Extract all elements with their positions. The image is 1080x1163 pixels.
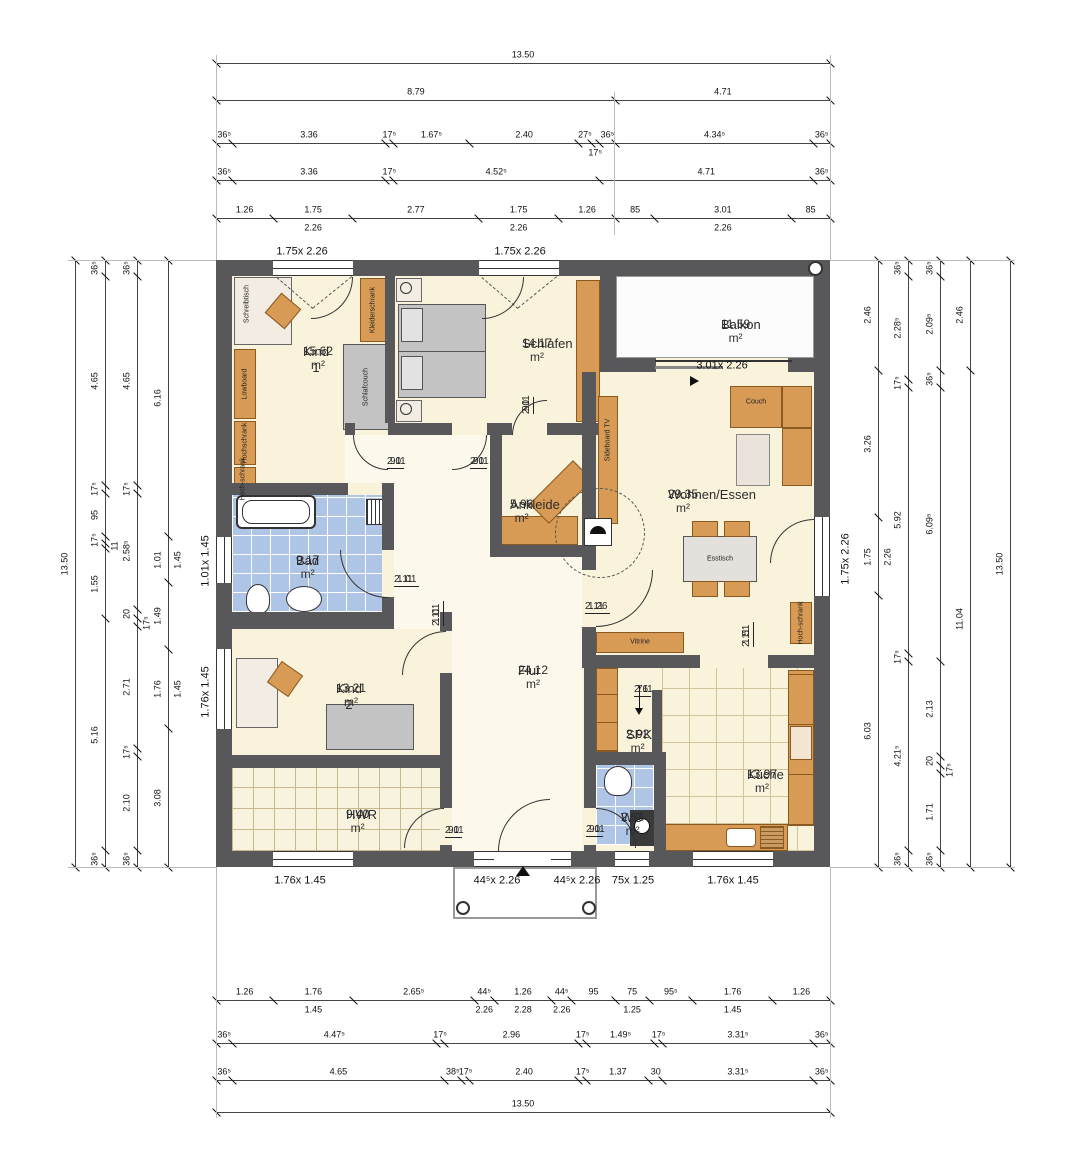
dim-sub-label: 2.26: [714, 224, 732, 233]
room-area: 24.12 m²: [518, 663, 548, 692]
window: [216, 649, 232, 729]
room-area: 9.17 m²: [296, 553, 319, 582]
dim-label: 3.26: [864, 435, 873, 453]
dim-line: [168, 260, 169, 867]
furniture-label-esstisch: Esstisch: [707, 556, 733, 563]
dim-label: 2.58⁵: [123, 541, 132, 562]
porch-column: [456, 901, 470, 915]
dim-label: 17⁵: [91, 483, 100, 497]
wall: [584, 845, 596, 851]
dim-label: 36⁵: [217, 1031, 231, 1040]
dim-label: 1.76: [724, 988, 742, 997]
dim-label: 17⁵: [91, 533, 100, 547]
room-area: 15.62 m²: [303, 344, 333, 373]
extension-line: [830, 867, 831, 1118]
wall: [768, 655, 814, 668]
window: [693, 851, 773, 867]
room-area: 13.21 m²: [336, 681, 366, 710]
dim-label: 1.71: [926, 803, 935, 821]
door-height: 2.11: [585, 601, 604, 613]
dim-label: 27⁵: [578, 131, 592, 140]
extension-line: [614, 92, 615, 235]
window: [273, 260, 353, 276]
dim-label: 20: [926, 756, 935, 766]
window-size-label: 44⁵x 2.26: [554, 876, 601, 887]
dim-label: 1.26: [236, 988, 254, 997]
room-area: 2.56 m²: [621, 810, 644, 839]
wall: [654, 765, 666, 851]
porch-column: [582, 901, 596, 915]
room-area: 29.35 m²: [668, 487, 698, 516]
window-size-label: 44⁵x 2.26: [474, 876, 521, 887]
dim-label: 3.36: [300, 168, 318, 177]
dim-label: 36⁵: [894, 852, 903, 866]
wall: [616, 358, 656, 372]
wall: [440, 673, 452, 768]
dim-label: 44⁵: [477, 988, 491, 997]
window: [479, 260, 559, 276]
dim-label: 95: [588, 988, 598, 997]
window: [474, 851, 494, 867]
room-area: 9.40 m²: [346, 807, 369, 836]
dim-line: [216, 1112, 830, 1113]
wall: [382, 483, 394, 550]
dining-chair: [692, 581, 718, 597]
extension-line: [216, 867, 217, 1118]
dim-line: [216, 218, 830, 219]
dim-label: 13.50: [512, 1100, 535, 1109]
dim-label: 3.31⁵: [727, 1031, 748, 1040]
dim-label: 2.71: [123, 679, 132, 697]
dim-label: 1.26: [578, 206, 596, 215]
dim-label: 36⁵: [926, 372, 935, 386]
dishwasher: [760, 826, 784, 849]
dim-line: [216, 143, 830, 144]
dim-label: 4.47⁵: [324, 1031, 345, 1040]
wall: [584, 752, 666, 765]
dim-label: 2.46: [956, 307, 965, 325]
dim-label: 13.50: [996, 552, 1005, 575]
furniture-label-schreibtisch: Schreibtisch: [244, 285, 251, 323]
dim-label: 4.65: [91, 372, 100, 390]
dim-label: 1.76: [305, 988, 323, 997]
wall: [232, 755, 452, 768]
dim-label: 17⁵: [123, 483, 132, 497]
desk: [236, 658, 278, 728]
furniture-label-lowboard: Lowboard: [242, 369, 249, 400]
turning-circle-dashed: [555, 488, 645, 578]
door-height: 2.11: [387, 456, 406, 468]
dim-line: [216, 180, 830, 181]
dim-label: 36⁵: [91, 852, 100, 866]
dim-label: 4.71: [698, 168, 716, 177]
door-height: 2.11: [470, 456, 489, 468]
dim-label: 1.55: [91, 575, 100, 593]
furniture-label-schlafcouch: Schlafcouch: [363, 368, 370, 406]
extension-line: [68, 867, 216, 868]
dim-line: [1010, 260, 1011, 867]
nightstand-lamp: [400, 403, 412, 415]
extension-line: [216, 55, 217, 260]
dim-label: 36⁵: [123, 261, 132, 275]
window: [216, 537, 232, 583]
dim-label: 8.79: [407, 88, 425, 97]
dim-label: 44⁵: [555, 988, 569, 997]
furniture-label-vitrine: Vitrine: [630, 639, 650, 646]
dim-label: 17⁵: [123, 745, 132, 759]
dining-chair: [724, 521, 750, 537]
dim-line: [970, 260, 971, 867]
extension-line: [68, 260, 216, 261]
pantry-shelf: [596, 668, 618, 752]
dim-line: [137, 260, 138, 867]
dim-label: 2.40: [515, 1068, 533, 1077]
door-height: 2.11: [521, 395, 533, 414]
dim-sub-label: 1.45: [724, 1006, 742, 1015]
dim-sub-label: 2.26: [884, 548, 893, 566]
dim-label: 1.76: [154, 680, 163, 698]
wall: [582, 655, 700, 668]
furniture-label-hochschrank_k: Hoch-schrank: [798, 601, 805, 644]
dim-label: 13.50: [61, 552, 70, 575]
dim-line: [216, 100, 830, 101]
room-area: 14.17 m²: [522, 336, 552, 365]
dim-sub-label: 2.26: [304, 224, 322, 233]
couch-module: [730, 386, 782, 428]
dim-label: 3.08: [154, 789, 163, 807]
dim-label: 1.75: [864, 548, 873, 566]
dim-sub-label: 1.25: [623, 1006, 641, 1015]
dim-label: 17⁵: [946, 763, 955, 777]
dim-label: 6.16: [154, 390, 163, 408]
dim-label: 2.46: [864, 307, 873, 325]
oven: [790, 726, 812, 760]
bathtub-inner: [242, 500, 310, 524]
washbasin: [286, 586, 322, 612]
dim-label: 2.77: [407, 206, 425, 215]
dim-line: [216, 63, 830, 64]
balcony-drain: [808, 261, 823, 276]
spk-arrow-icon: [635, 708, 643, 715]
extension-line: [830, 867, 1015, 868]
dim-label: 2.13: [926, 700, 935, 718]
pillow: [401, 308, 423, 342]
wall: [600, 260, 616, 372]
hallway-floor: [452, 557, 582, 851]
dim-label: 2.09⁵: [926, 313, 935, 334]
dim-label: 36⁵: [91, 261, 100, 275]
dim-label: 36⁵: [217, 1068, 231, 1077]
window-size-label: 1.75x 2.26: [276, 247, 327, 258]
dim-label: 85: [806, 206, 816, 215]
furniture-label-hochschrank2: Hoch-schrank: [240, 457, 247, 500]
door-height: 2.11: [741, 628, 753, 647]
dim-label: 1.37: [609, 1068, 627, 1077]
dim-label: 3.01: [714, 206, 732, 215]
dim-line: [216, 1043, 830, 1044]
dim-label: 6.03: [864, 723, 873, 741]
dim-sub-label: 2.28: [514, 1006, 532, 1015]
window-size-label: 75x 1.25: [612, 876, 654, 887]
extension-line: [830, 260, 1015, 261]
wall: [385, 276, 395, 423]
dim-label: 11.04: [956, 608, 965, 630]
door-height: 2.11: [431, 607, 443, 626]
window-size-label: 1.76x 1.45: [707, 876, 758, 887]
dim-label: 4.71: [714, 88, 732, 97]
furniture-label-sideboard_tv: Sideboard TV: [605, 419, 612, 462]
dim-label: 5.16: [91, 726, 100, 744]
wall: [582, 627, 596, 655]
dim-label: 17⁵: [588, 149, 602, 158]
window: [615, 851, 649, 867]
dim-label: 6.09⁵: [926, 513, 935, 534]
dim-label: 85: [630, 206, 640, 215]
dim-line: [105, 260, 106, 867]
dim-line: [878, 260, 879, 867]
dim-label: 2.28⁵: [894, 317, 903, 338]
furniture-label-kleiderschrank: Kleiderschrank: [370, 287, 377, 333]
dim-label: 36⁵: [217, 168, 231, 177]
dim-label: 17⁵: [894, 376, 903, 390]
dim-label: 17⁵: [894, 650, 903, 664]
wall: [487, 423, 512, 435]
dim-sub-label: 2.26: [510, 224, 528, 233]
wall: [584, 765, 596, 808]
window-size-label: 3.01x 2.26: [696, 361, 747, 372]
furniture-label-couch: Couch: [746, 399, 766, 406]
toilet: [604, 766, 632, 796]
dim-label: 2.65⁵: [403, 988, 424, 997]
door-height: 2.11: [394, 574, 413, 586]
toilet: [246, 584, 270, 614]
pillow: [401, 356, 423, 390]
window: [551, 851, 571, 867]
dim-label: 13.50: [512, 51, 535, 60]
dim-label: 30: [651, 1068, 661, 1077]
dim-label: 1.26: [236, 206, 254, 215]
extension-line: [830, 55, 831, 260]
dim-label: 36⁵: [926, 852, 935, 866]
dim-label: 1.49⁵: [610, 1031, 631, 1040]
window-size-label: 1.76x 1.45: [274, 876, 325, 887]
dim-label: 4.21⁵: [894, 745, 903, 766]
dim-label: 4.65: [123, 372, 132, 390]
window: [494, 851, 551, 867]
dim-label: 11: [111, 542, 120, 551]
dim-label: 17⁵: [143, 616, 152, 630]
dim-label: 36⁵: [926, 261, 935, 275]
wall: [652, 690, 662, 752]
kitchen-sink: [726, 828, 756, 847]
wall: [345, 423, 355, 435]
door-height: 2.11: [445, 825, 464, 837]
nightstand-lamp: [400, 282, 412, 294]
dim-sub-label: 2.26: [553, 1006, 571, 1015]
couch-module: [782, 428, 812, 486]
dim-label: 1.67⁵: [421, 131, 442, 140]
dim-label: 95⁵: [664, 988, 678, 997]
dim-label: 75: [627, 988, 637, 997]
dim-label: 1.75: [304, 206, 322, 215]
room-area: 5.96 m²: [510, 497, 533, 526]
dim-label: 5.92: [894, 511, 903, 529]
dim-line: [216, 1080, 830, 1081]
dim-sub-label: 1.45: [174, 680, 183, 698]
dim-label: 36⁵: [123, 852, 132, 866]
dim-label: 95: [91, 510, 100, 520]
window-size-label: 1.75x 2.26: [494, 247, 545, 258]
wall: [440, 768, 452, 808]
dim-label: 1.26: [514, 988, 532, 997]
dim-line: [75, 260, 76, 867]
dim-label: 20: [123, 609, 132, 619]
couch-module: [782, 386, 812, 428]
dim-label: 3.36: [300, 131, 318, 140]
wall: [388, 423, 452, 435]
floorplan-canvas: Kind 115.62 m² Schlafen14.17 m² Balkon11…: [0, 0, 1080, 1163]
dim-sub-label: 1.45: [305, 1006, 323, 1015]
window-size-label: 1.01x 1.45: [201, 535, 212, 586]
room-area: 11.59 m²: [721, 317, 750, 346]
wall: [788, 358, 830, 372]
slide-arrow-icon: [690, 376, 699, 386]
window: [273, 851, 353, 867]
window: [814, 517, 830, 596]
dim-label: 2.96: [503, 1031, 521, 1040]
dim-label: 36⁵: [601, 131, 615, 140]
dim-sub-label: 1.45: [174, 551, 183, 569]
dim-label: 2.40: [515, 131, 533, 140]
door-height: 2.11: [634, 684, 653, 696]
dim-label: 1.75: [510, 206, 528, 215]
dim-label: 2.10: [123, 795, 132, 813]
door-height: 2.11: [586, 824, 605, 836]
window-size-label: 1.76x 1.45: [201, 666, 212, 717]
dim-label: 36⁵: [217, 131, 231, 140]
dining-chair: [692, 521, 718, 537]
wall: [232, 612, 394, 629]
dim-sub-label: 2.26: [475, 1006, 493, 1015]
dim-label: 1.26: [793, 988, 811, 997]
dim-label: 4.34⁵: [704, 131, 725, 140]
wall: [232, 483, 348, 495]
dim-label: 4.65: [330, 1068, 348, 1077]
dim-label: 3.31⁵: [727, 1068, 748, 1077]
wall: [584, 668, 596, 752]
balcony-floor: [616, 276, 814, 358]
coffee-table: [736, 434, 770, 486]
wall: [490, 435, 502, 557]
dim-label: 4.52⁵: [486, 168, 507, 177]
dim-line: [216, 1000, 830, 1001]
dining-chair: [724, 581, 750, 597]
dim-line: [940, 260, 941, 867]
dim-line: [908, 260, 909, 867]
window-size-label: 1.75x 2.26: [841, 533, 852, 584]
dim-label: 1.01: [154, 551, 163, 569]
dim-label: 1.49: [154, 607, 163, 625]
room-area: 13.97 m²: [747, 767, 777, 796]
room-area: 2.92 m²: [626, 727, 649, 756]
dim-label: 36⁵: [894, 261, 903, 275]
